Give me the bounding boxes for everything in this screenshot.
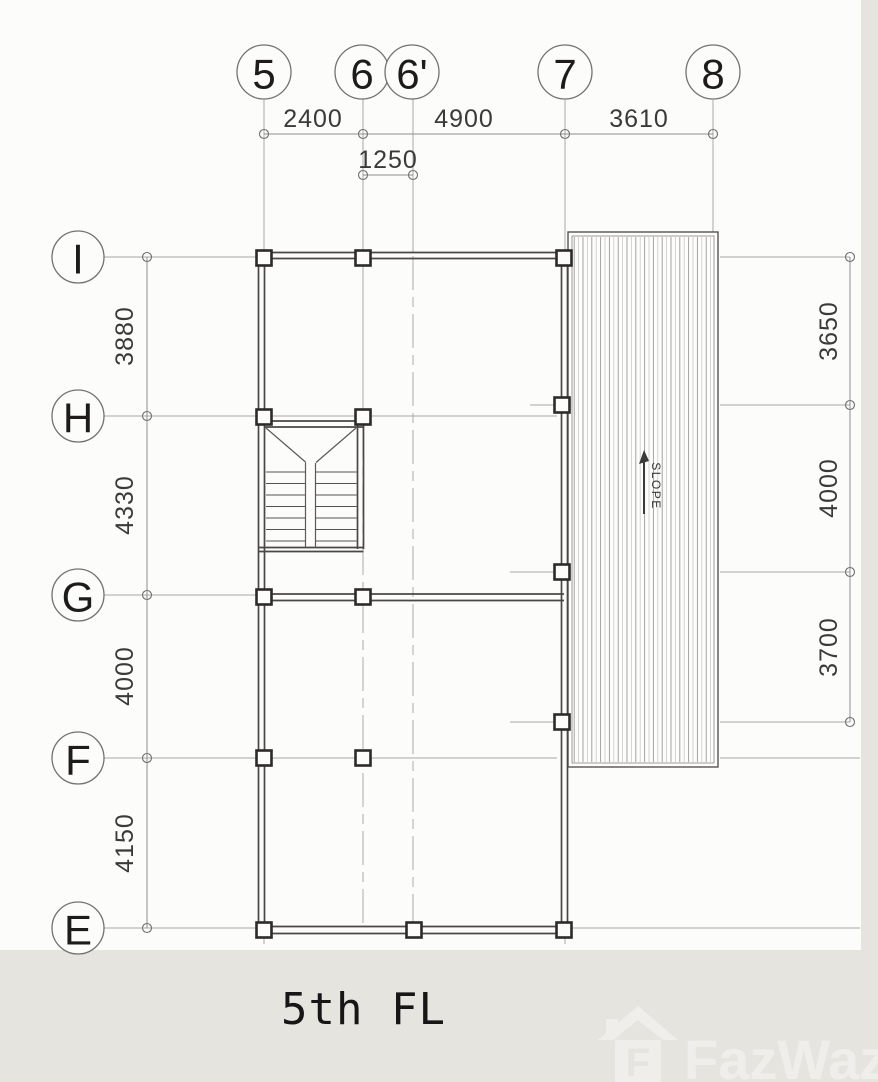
grid-bubble-E: E (52, 902, 104, 954)
dim-right-3: 3700 (815, 617, 843, 677)
svg-text:8: 8 (701, 51, 724, 98)
svg-text:I: I (72, 236, 84, 283)
svg-text:6: 6 (350, 51, 373, 98)
dim-top-sub: 1250 (358, 146, 418, 174)
dim-top-1: 2400 (283, 105, 343, 133)
drawing-paper (0, 0, 861, 950)
grid-bubble-6p: 6' (385, 45, 439, 99)
svg-text:H: H (63, 395, 93, 442)
svg-text:5: 5 (252, 51, 275, 98)
grid-bubble-6: 6 (335, 45, 389, 99)
slope-label: SLOPE (649, 462, 663, 510)
grid-bubble-H: H (52, 390, 104, 442)
dim-left-2: 4330 (111, 475, 139, 535)
svg-text:F: F (65, 737, 91, 784)
sloped-roof: SLOPE (568, 232, 718, 767)
grid-bubble-7: 7 (538, 45, 592, 99)
floorplan-drawing: SLOPE 5 (0, 0, 878, 1082)
dim-left-4: 4150 (111, 813, 139, 873)
grid-bubble-8: 8 (686, 45, 740, 99)
grid-bubble-F: F (52, 732, 104, 784)
watermark-icon-letter: F (626, 1041, 650, 1082)
watermark: F FazWaz (598, 1006, 878, 1082)
dim-top-2: 4900 (434, 105, 494, 133)
grid-bubble-5: 5 (237, 45, 291, 99)
grid-bubble-I: I (52, 231, 104, 283)
watermark-brand-text: FazWaz (684, 1028, 878, 1082)
floor-title: 5th FL (281, 986, 446, 1034)
svg-text:E: E (64, 907, 92, 954)
dim-left-1: 3880 (111, 306, 139, 366)
dim-right-2: 4000 (815, 458, 843, 518)
svg-text:7: 7 (553, 51, 576, 98)
svg-text:G: G (62, 574, 95, 621)
watermark-house-icon: F (598, 1006, 678, 1082)
grid-bubble-G: G (52, 569, 104, 621)
dim-right-1: 3650 (815, 301, 843, 361)
dim-top-3: 3610 (609, 105, 669, 133)
dim-left-3: 4000 (111, 646, 139, 706)
svg-text:6': 6' (396, 51, 427, 98)
